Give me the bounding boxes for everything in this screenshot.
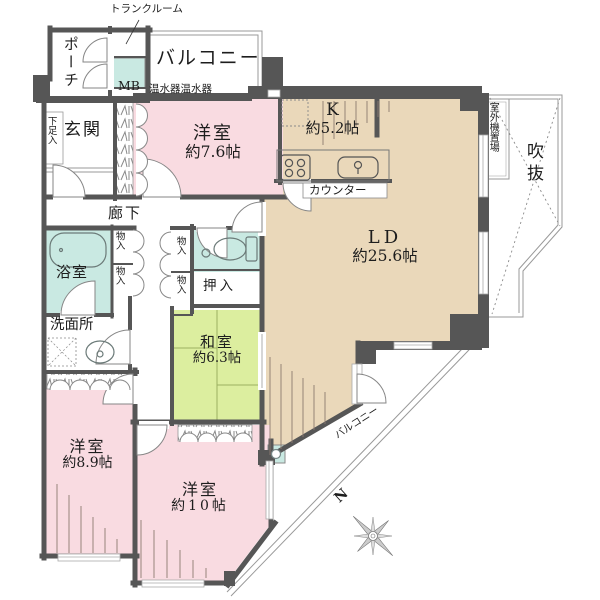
- balcony-top-label: バルコニー: [156, 48, 261, 69]
- meter-box-label: MB: [113, 79, 145, 93]
- living-dining-label: LD 約25.6帖: [320, 228, 450, 266]
- kitchen-size: 約5.2帖: [285, 120, 380, 137]
- bedroom3-size: 約10帖: [146, 499, 254, 515]
- bathroom-label: 浴室: [56, 264, 88, 281]
- shoe-cabinet-label: 下足入: [45, 116, 56, 145]
- entrance-label: 玄関: [64, 121, 102, 140]
- closet-label-2: 物入: [113, 266, 124, 285]
- bedroom1-label: 洋室 約7.6帖: [158, 124, 268, 162]
- living-dining-name: LD: [320, 228, 450, 248]
- compass-icon: [334, 497, 412, 575]
- floor-plan: トランクルーム ポーチ MB バルコニー 温水器温水器 下足入 玄関 洋室 約7…: [0, 0, 600, 600]
- porch-label: ポーチ: [62, 36, 79, 90]
- corridor-label: 廊下: [108, 205, 142, 222]
- trunk-room-label: トランクルーム: [110, 4, 183, 16]
- kitchen-label: K 約5.2帖: [285, 101, 380, 137]
- oshiire-label: 押入: [203, 279, 236, 294]
- slop-sink-icon: [272, 450, 281, 459]
- outdoor-unit-label: 室外機置場: [487, 102, 498, 152]
- closet-label-1: 物入: [113, 231, 124, 250]
- bedroom3-name: 洋室: [146, 481, 254, 499]
- japanese-room-label: 和室 約6.3帖: [172, 334, 262, 366]
- bedroom2-label: 洋室 約8.9帖: [40, 438, 135, 472]
- void-label: 吹抜: [523, 142, 542, 186]
- bedroom2-name: 洋室: [40, 438, 135, 456]
- japanese-room-name: 和室: [172, 334, 262, 351]
- counter-label: カウンター: [309, 184, 367, 197]
- washroom-label: 洗面所: [50, 317, 94, 333]
- water-heater-label: 温水器温水器: [149, 84, 212, 96]
- kitchen-name: K: [285, 101, 380, 120]
- living-dining-size: 約25.6帖: [320, 248, 450, 265]
- bedroom3-label: 洋室 約10帖: [146, 481, 254, 515]
- bedroom1-size: 約7.6帖: [158, 144, 268, 161]
- japanese-room-size: 約6.3帖: [172, 351, 262, 366]
- bedroom2-size: 約8.9帖: [40, 456, 135, 472]
- floorplan-drawing: [0, 0, 600, 600]
- bedroom1-name: 洋室: [158, 124, 268, 144]
- closet-label-4: 物入: [174, 275, 185, 294]
- closet-label-3: 物入: [174, 236, 185, 255]
